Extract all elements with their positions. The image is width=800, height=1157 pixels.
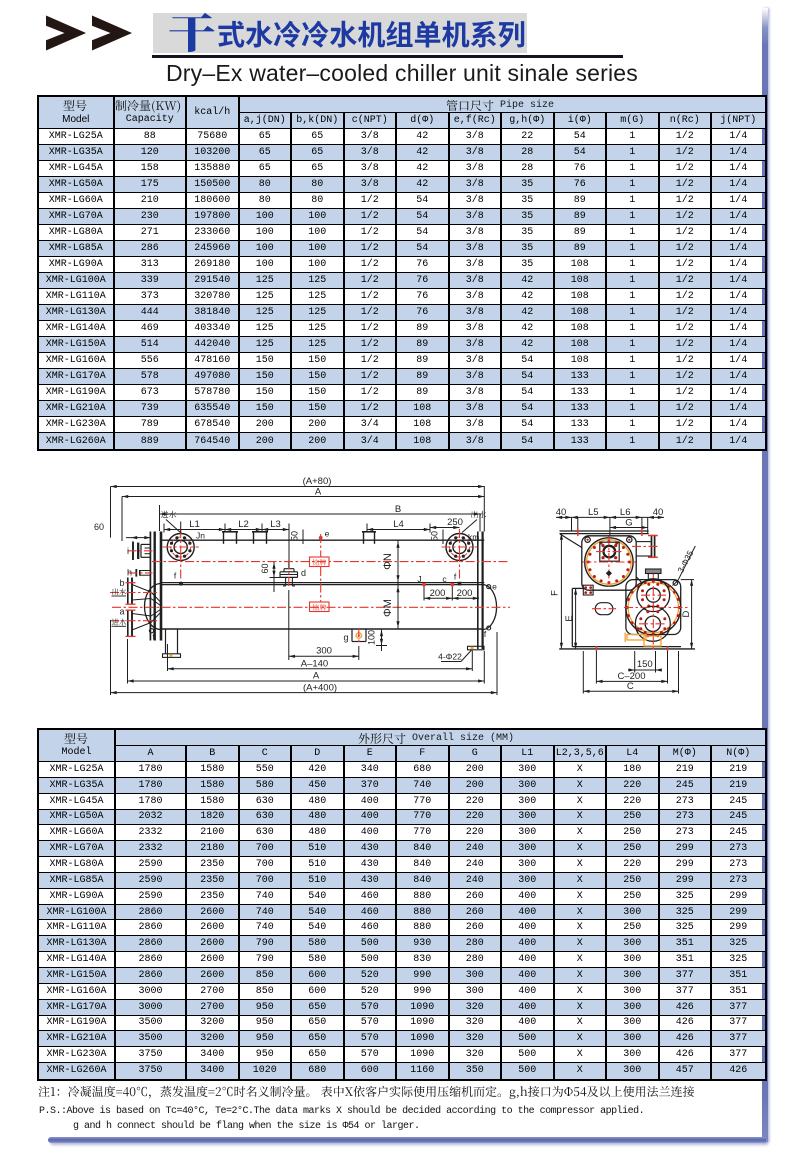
svg-text:(A+400): (A+400) xyxy=(303,682,337,693)
svg-text:e: e xyxy=(325,529,330,539)
svg-text:ΦM: ΦM xyxy=(382,599,394,617)
svg-text:L4: L4 xyxy=(393,519,404,530)
svg-text:L5: L5 xyxy=(588,507,599,518)
svg-text:E: E xyxy=(564,615,575,621)
svg-text:ΦN: ΦN xyxy=(382,553,394,570)
svg-text:40: 40 xyxy=(653,507,664,518)
svg-text:A: A xyxy=(315,486,322,497)
svg-text:Jn: Jn xyxy=(196,531,205,541)
svg-text:60: 60 xyxy=(260,563,270,573)
svg-text:d: d xyxy=(301,568,306,578)
svg-text:g: g xyxy=(343,633,348,643)
svg-text:300: 300 xyxy=(316,646,332,657)
svg-text:e: e xyxy=(492,582,497,592)
svg-text:C: C xyxy=(627,681,634,692)
svg-text:G: G xyxy=(625,517,632,528)
svg-text:A: A xyxy=(313,671,320,682)
svg-text:km: km xyxy=(468,532,479,542)
svg-text:250: 250 xyxy=(447,517,463,528)
svg-text:200: 200 xyxy=(457,588,473,599)
svg-text:h: h xyxy=(127,568,132,578)
svg-text:3-Φ35: 3-Φ35 xyxy=(675,549,695,575)
svg-text:150: 150 xyxy=(637,659,653,670)
svg-text:f: f xyxy=(484,629,487,639)
svg-text:f: f xyxy=(454,572,457,582)
svg-text:L2: L2 xyxy=(238,519,249,530)
svg-text:f: f xyxy=(174,571,177,581)
svg-text:J: J xyxy=(417,574,421,584)
svg-text:4-Φ22: 4-Φ22 xyxy=(438,652,462,662)
svg-text:L3: L3 xyxy=(270,519,281,530)
svg-text:100: 100 xyxy=(367,630,377,645)
svg-text:b: b xyxy=(119,578,124,588)
svg-text:i: i xyxy=(127,546,129,556)
svg-text:60: 60 xyxy=(94,522,104,532)
svg-text:B: B xyxy=(395,504,401,515)
svg-text:L1: L1 xyxy=(189,519,200,530)
svg-text:a: a xyxy=(119,607,124,617)
svg-text:200: 200 xyxy=(430,588,446,599)
svg-text:D: D xyxy=(681,610,692,617)
svg-text:A–140: A–140 xyxy=(301,658,328,669)
svg-text:F: F xyxy=(550,590,561,596)
svg-text:40: 40 xyxy=(556,507,567,518)
